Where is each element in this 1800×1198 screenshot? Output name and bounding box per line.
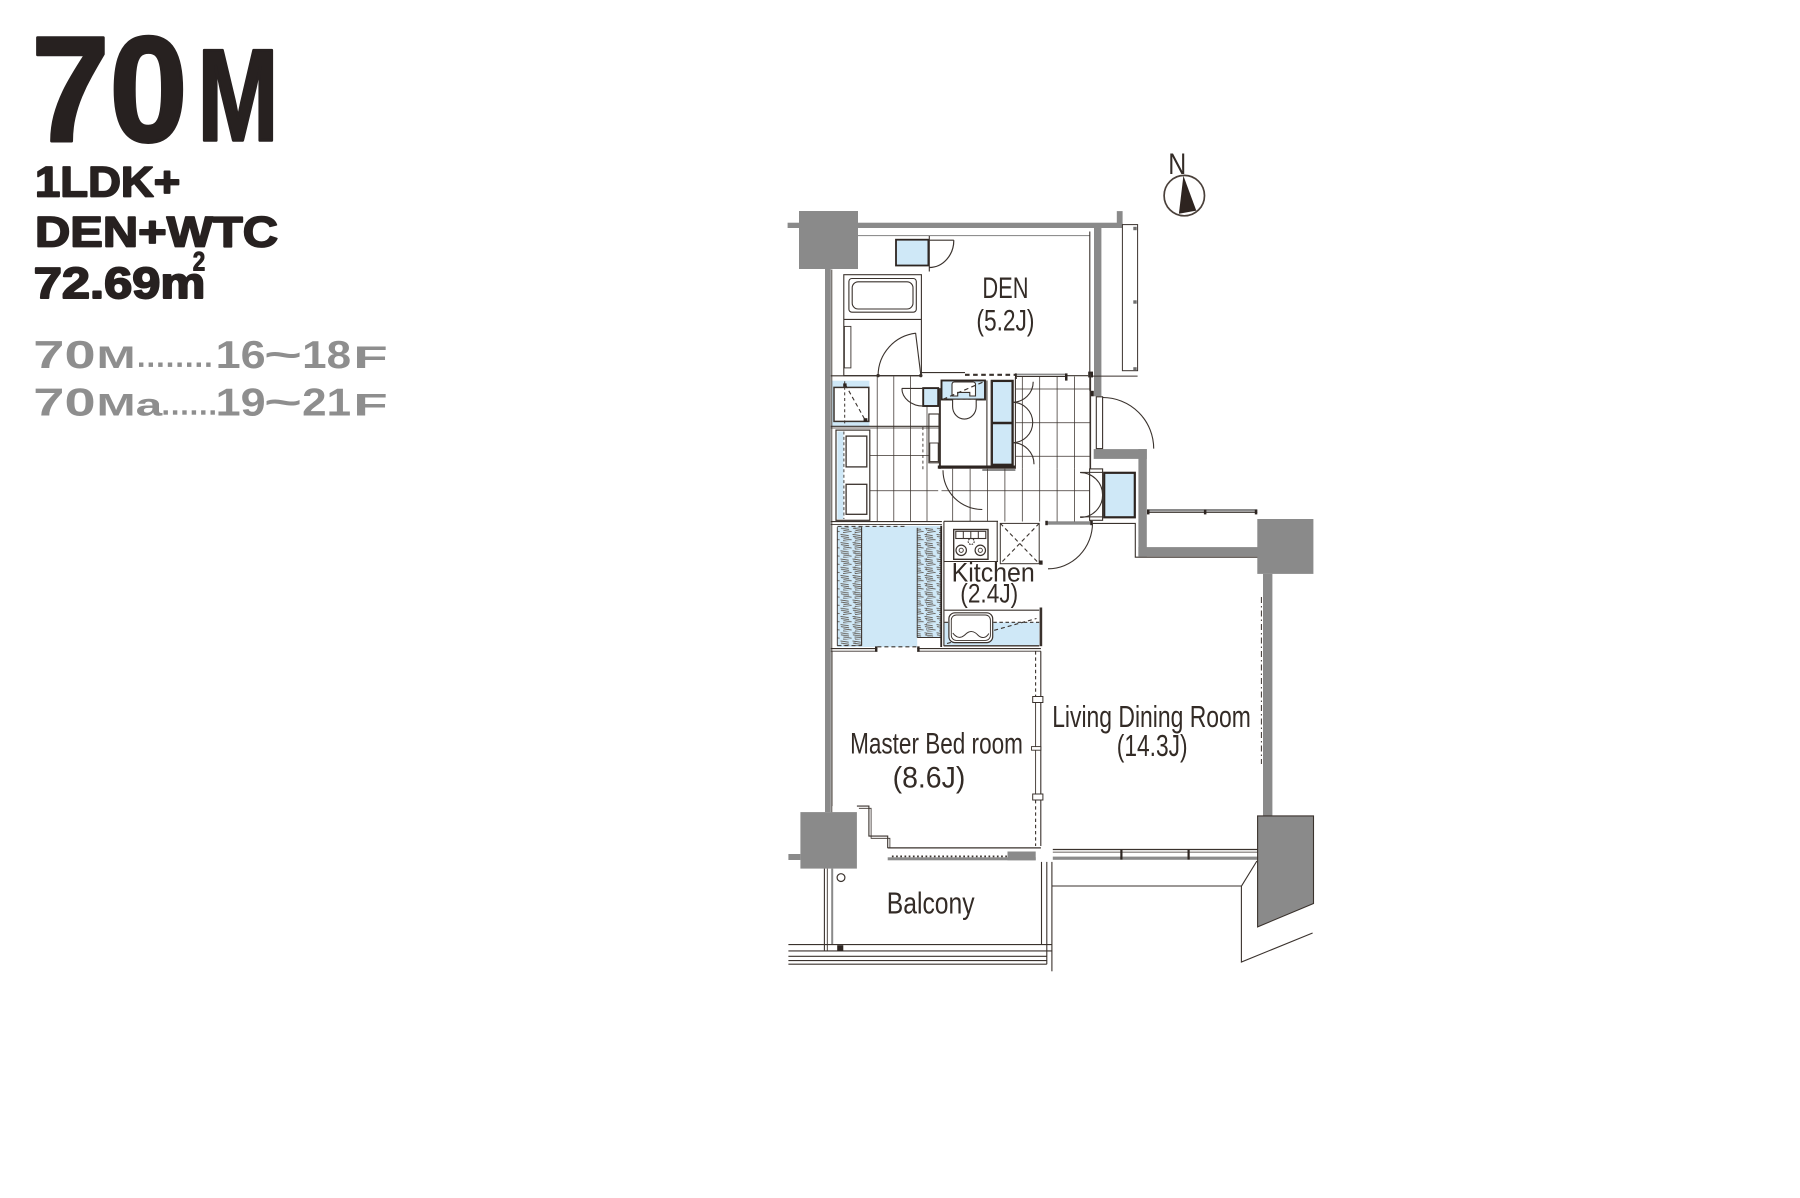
svg-text:DEN+WTC: DEN+WTC — [35, 209, 278, 256]
svg-text:M: M — [97, 340, 136, 375]
svg-text:M: M — [97, 388, 136, 423]
svg-text:72.69m: 72.69m — [34, 259, 206, 308]
svg-text:(14.3J): (14.3J) — [1117, 730, 1188, 763]
svg-text:21: 21 — [302, 382, 351, 425]
svg-text:2: 2 — [193, 246, 206, 276]
svg-text:~: ~ — [264, 334, 302, 377]
svg-text:70: 70 — [32, 5, 188, 173]
svg-text:M: M — [198, 22, 279, 168]
svg-text:a: a — [136, 388, 164, 423]
svg-text:16: 16 — [216, 334, 266, 377]
svg-text:Master Bed room: Master Bed room — [850, 728, 1023, 761]
svg-text:(8.6J): (8.6J) — [893, 762, 966, 795]
svg-text:1LDK+: 1LDK+ — [35, 159, 180, 206]
svg-text:F: F — [353, 340, 388, 375]
svg-text:Balcony: Balcony — [887, 887, 975, 921]
svg-text:(2.4J): (2.4J) — [960, 578, 1018, 609]
svg-text:18: 18 — [302, 334, 351, 377]
svg-text:70: 70 — [33, 382, 95, 425]
svg-text:F: F — [353, 388, 388, 423]
svg-text:70: 70 — [33, 334, 95, 377]
svg-text:DEN: DEN — [982, 272, 1028, 305]
svg-text:Living Dining Room: Living Dining Room — [1052, 701, 1251, 734]
svg-text:(5.2J): (5.2J) — [976, 305, 1034, 338]
svg-text:~: ~ — [264, 382, 302, 425]
svg-text:19: 19 — [216, 382, 266, 425]
